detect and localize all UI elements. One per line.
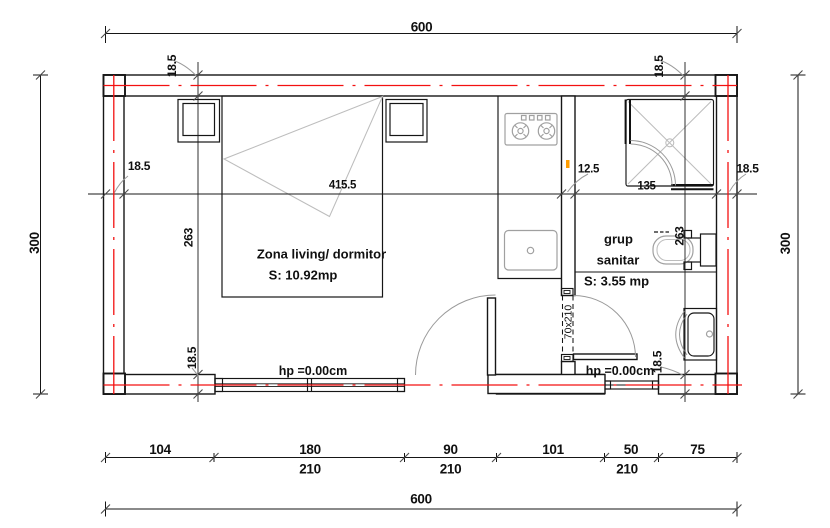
room-bathroom-line1: grup	[604, 232, 633, 247]
dim-vchain-right-1: 263	[673, 226, 687, 246]
dim-seg-3: 101	[542, 442, 564, 457]
dim-opening-2: 210	[616, 462, 638, 477]
room-living-name: Zona living/ dormitor	[257, 247, 386, 262]
dim-bottom-total: 600	[410, 492, 432, 507]
dim-opening-1: 210	[440, 462, 462, 477]
dim-hchain-1: 415.5	[329, 180, 357, 192]
bathroom-door-leaf	[574, 354, 638, 360]
room-bathroom-area: S: 3.55 mp	[584, 274, 649, 289]
dim-vchain-right-0: 18.5	[652, 55, 666, 78]
floor-level-right: hp =0.00cm	[586, 364, 654, 378]
floor-level-left: hp =0.00cm	[279, 364, 347, 378]
room-bathroom-line2: sanitar	[597, 253, 640, 268]
bathroom-door-size: 70x210	[563, 305, 575, 340]
dim-hchain-2: 12.5	[578, 164, 600, 176]
room-living-area: S: 10.92mp	[269, 268, 338, 283]
dim-top-total: 600	[411, 20, 433, 35]
dim-seg-4: 50	[624, 442, 638, 457]
dim-hchain-0: 18.5	[128, 159, 151, 173]
dim-vchain-left-2: 18.5	[185, 346, 199, 369]
dim-opening-0: 210	[299, 462, 321, 477]
floor-plan-canvas: 600 600 300 300 104 180 90 101 50 75 210…	[0, 0, 830, 528]
dim-vchain-left-1: 263	[182, 227, 196, 247]
small-orange-mark	[566, 160, 570, 168]
column-bottom-right	[716, 374, 738, 395]
floor-plan-drawing: 600 600 300 300 104 180 90 101 50 75 210…	[0, 0, 830, 528]
dim-seg-1: 180	[299, 442, 321, 457]
dim-vchain-left-0: 18.5	[165, 54, 179, 77]
dim-left-total: 300	[27, 232, 42, 254]
dim-hchain-4: 18.5	[736, 162, 759, 176]
dim-seg-5: 75	[690, 442, 705, 457]
dim-seg-2: 90	[443, 442, 457, 457]
dim-hchain-3: 135	[637, 181, 656, 193]
dim-seg-0: 104	[149, 442, 171, 457]
dim-right-total: 300	[778, 233, 793, 255]
partition-wall-lower	[562, 362, 576, 376]
entry-door-leaf	[488, 298, 496, 375]
